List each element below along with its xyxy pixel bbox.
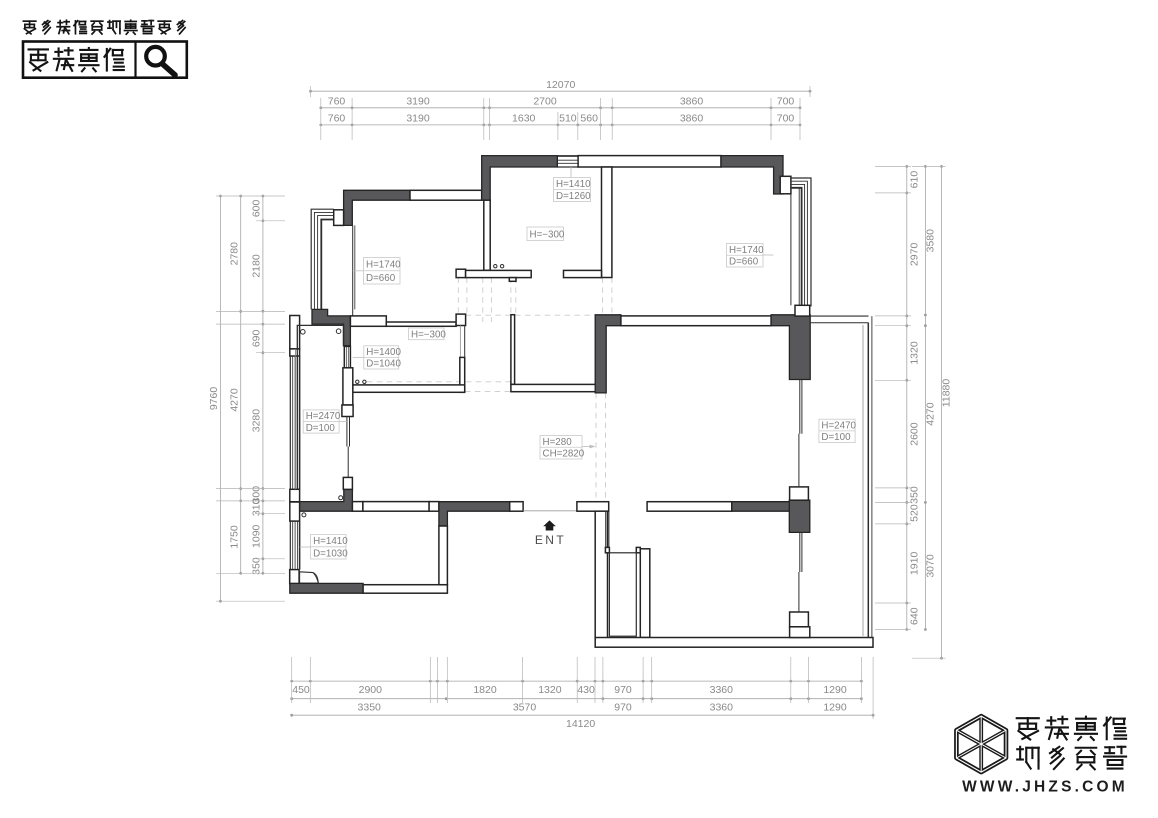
svg-text:H=2470: H=2470 bbox=[821, 421, 856, 432]
svg-text:D=1030: D=1030 bbox=[313, 548, 348, 559]
svg-text:1910: 1910 bbox=[908, 552, 920, 576]
svg-text:2970: 2970 bbox=[908, 243, 920, 267]
svg-text:2700: 2700 bbox=[533, 96, 557, 108]
svg-text:1320: 1320 bbox=[538, 684, 562, 696]
svg-text:1750: 1750 bbox=[229, 525, 241, 549]
svg-text:11880: 11880 bbox=[941, 379, 953, 408]
svg-text:H=2470: H=2470 bbox=[306, 411, 341, 422]
svg-text:640: 640 bbox=[908, 607, 920, 625]
svg-text:14120: 14120 bbox=[566, 718, 595, 730]
svg-text:350: 350 bbox=[251, 557, 263, 575]
svg-text:610: 610 bbox=[908, 171, 920, 189]
svg-text:970: 970 bbox=[614, 701, 632, 713]
svg-text:3580: 3580 bbox=[925, 229, 937, 253]
svg-text:CH=2820: CH=2820 bbox=[543, 449, 585, 460]
svg-text:3360: 3360 bbox=[710, 701, 734, 713]
svg-text:3190: 3190 bbox=[406, 113, 430, 125]
svg-text:3280: 3280 bbox=[251, 409, 263, 433]
svg-text:1820: 1820 bbox=[473, 684, 497, 696]
svg-text:690: 690 bbox=[251, 329, 263, 347]
svg-text:2180: 2180 bbox=[251, 254, 263, 278]
svg-text:560: 560 bbox=[580, 113, 598, 125]
svg-text:700: 700 bbox=[777, 113, 795, 125]
svg-text:H=1740: H=1740 bbox=[729, 245, 764, 256]
svg-text:D=1040: D=1040 bbox=[366, 359, 401, 370]
svg-text:H=1740: H=1740 bbox=[366, 260, 401, 271]
svg-text:D=1260: D=1260 bbox=[556, 191, 591, 202]
svg-text:600: 600 bbox=[251, 199, 263, 217]
svg-text:4270: 4270 bbox=[229, 388, 241, 412]
svg-text:700: 700 bbox=[777, 96, 795, 108]
svg-text:D=660: D=660 bbox=[366, 273, 396, 284]
svg-text:2780: 2780 bbox=[229, 242, 241, 266]
svg-text:D=100: D=100 bbox=[821, 432, 851, 443]
svg-text:520: 520 bbox=[908, 504, 920, 522]
svg-text:1630: 1630 bbox=[512, 113, 536, 125]
svg-text:4270: 4270 bbox=[925, 402, 937, 426]
svg-text:2900: 2900 bbox=[359, 684, 383, 696]
svg-text:ENT: ENT bbox=[535, 533, 566, 547]
svg-text:510: 510 bbox=[559, 113, 577, 125]
svg-text:1290: 1290 bbox=[823, 684, 847, 696]
svg-text:1090: 1090 bbox=[251, 524, 263, 548]
svg-text:3360: 3360 bbox=[710, 684, 734, 696]
svg-text:3570: 3570 bbox=[513, 701, 537, 713]
svg-text:WWW.JHZS.COM: WWW.JHZS.COM bbox=[962, 779, 1128, 796]
svg-text:12070: 12070 bbox=[546, 79, 575, 91]
svg-text:H=1410: H=1410 bbox=[556, 179, 591, 190]
svg-text:D=100: D=100 bbox=[306, 423, 336, 434]
svg-text:450: 450 bbox=[292, 684, 310, 696]
svg-text:1290: 1290 bbox=[823, 701, 847, 713]
svg-text:H=−300: H=−300 bbox=[411, 329, 446, 340]
svg-text:1320: 1320 bbox=[908, 341, 920, 365]
svg-text:3350: 3350 bbox=[358, 701, 382, 713]
svg-text:970: 970 bbox=[614, 684, 632, 696]
svg-text:3190: 3190 bbox=[406, 96, 430, 108]
svg-text:760: 760 bbox=[328, 113, 346, 125]
svg-text:H=1410: H=1410 bbox=[313, 536, 348, 547]
svg-text:430: 430 bbox=[577, 684, 595, 696]
svg-text:9760: 9760 bbox=[208, 387, 220, 411]
svg-text:350: 350 bbox=[908, 486, 920, 504]
svg-text:3860: 3860 bbox=[680, 96, 704, 108]
svg-text:2600: 2600 bbox=[908, 422, 920, 446]
svg-text:D=660: D=660 bbox=[729, 257, 759, 268]
svg-text:760: 760 bbox=[328, 96, 346, 108]
svg-text:3860: 3860 bbox=[680, 113, 704, 125]
svg-text:H=1400: H=1400 bbox=[366, 347, 401, 358]
svg-text:H=−300: H=−300 bbox=[530, 229, 565, 240]
svg-text:H=280: H=280 bbox=[543, 437, 573, 448]
svg-text:3070: 3070 bbox=[925, 554, 937, 578]
